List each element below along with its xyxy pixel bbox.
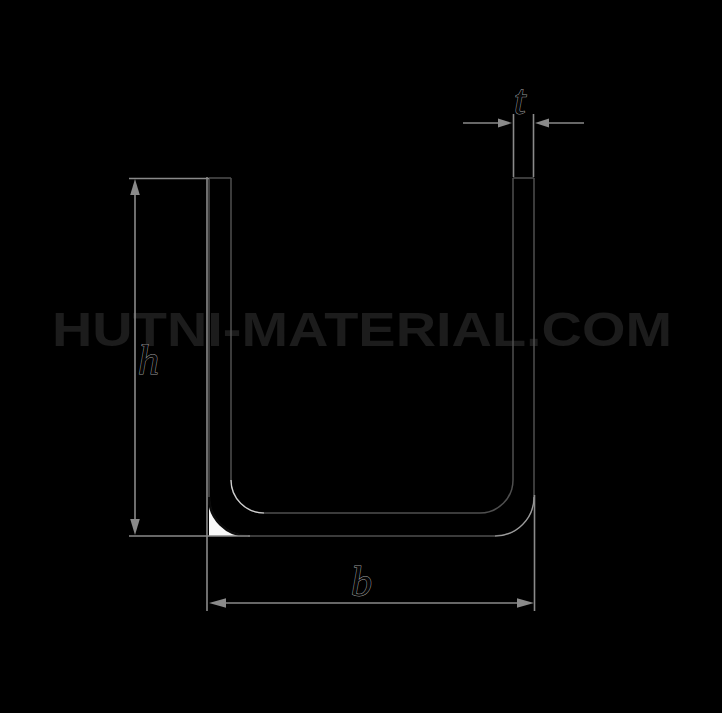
inner-fillet-highlight-arc [231,480,264,513]
profile-outer-contour [209,178,534,536]
height-label: h [138,337,159,383]
h-arrow-down [130,519,140,535]
thickness-label: t [514,77,527,123]
b-arrow-left [209,598,226,608]
t-arrow-inward-left [535,119,549,128]
b-arrow-right [517,598,534,608]
t-arrow-inward-right [498,119,512,128]
h-arrow-up [130,179,140,195]
u-profile-outline [209,178,534,536]
diagram-canvas: HUTNI-MATERIAL.COM [0,0,722,713]
width-label: b [351,559,372,605]
u-profile-diagram: HUTNI-MATERIAL.COM [0,0,722,713]
dimension-arrowheads [130,119,549,608]
